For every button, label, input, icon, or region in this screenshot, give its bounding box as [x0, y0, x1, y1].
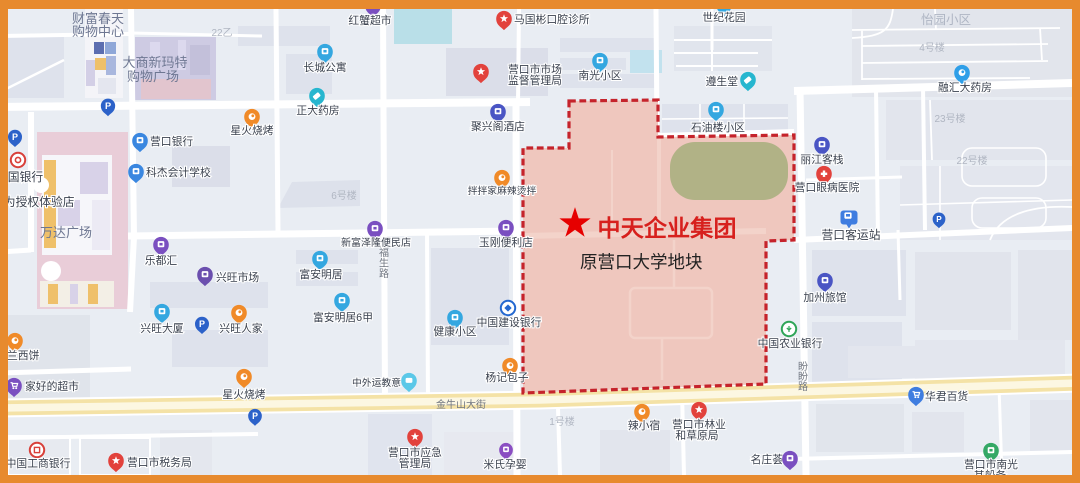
svg-text:6号楼: 6号楼 [331, 189, 357, 202]
svg-text:星火烧烤: 星火烧烤 [222, 387, 265, 401]
svg-text:营口客运站: 营口客运站 [822, 228, 881, 242]
svg-text:营口市南光: 营口市南光 [964, 457, 1018, 471]
svg-text:营口市市场: 营口市市场 [508, 62, 562, 76]
svg-text:杨记包子: 杨记包子 [485, 370, 528, 384]
svg-text:兴旺市场: 兴旺市场 [216, 270, 259, 284]
svg-text:遵生堂: 遵生堂 [706, 74, 739, 88]
svg-text:拌拌家麻辣烫拌: 拌拌家麻辣烫拌 [468, 184, 537, 197]
svg-text:兴旺人家: 兴旺人家 [219, 321, 262, 335]
svg-text:红蟹超市: 红蟹超市 [348, 13, 391, 27]
svg-text:监督管理局: 监督管理局 [508, 73, 562, 87]
svg-text:富安明居: 富安明居 [299, 267, 342, 281]
svg-text:星火烧烤: 星火烧烤 [230, 123, 273, 137]
svg-text:营口市税务局: 营口市税务局 [127, 455, 192, 469]
svg-text:米氏孕婴: 米氏孕婴 [483, 458, 526, 471]
svg-text:和草原局: 和草原局 [675, 429, 718, 442]
svg-text:兰西饼: 兰西饼 [7, 348, 40, 362]
svg-text:万达广场: 万达广场 [40, 225, 92, 240]
svg-text:P: P [252, 411, 258, 421]
svg-text:23号楼: 23号楼 [934, 112, 965, 125]
svg-text:营口银行: 营口银行 [150, 134, 193, 148]
svg-text:营口眼病医院: 营口眼病医院 [795, 180, 860, 194]
svg-text:P: P [936, 215, 942, 224]
svg-text:健康小区: 健康小区 [433, 324, 476, 338]
svg-text:福生路: 福生路 [379, 246, 389, 280]
svg-text:聚兴阁酒店: 聚兴阁酒店 [471, 119, 525, 133]
svg-text:华君百货: 华君百货 [925, 389, 968, 403]
svg-text:中外运教意: 中外运教意 [352, 376, 401, 389]
svg-text:原营口大学地块: 原营口大学地块 [580, 252, 703, 272]
svg-text:大商新玛特: 大商新玛特 [122, 55, 187, 70]
svg-text:科杰会计学校: 科杰会计学校 [146, 165, 211, 179]
svg-text:22号楼: 22号楼 [956, 154, 987, 167]
svg-text:怡园小区: 怡园小区 [921, 13, 971, 27]
svg-text:营口市应急: 营口市应急 [388, 445, 442, 459]
svg-text:中国工商银行: 中国工商银行 [6, 456, 71, 470]
svg-text:世纪花园: 世纪花园 [702, 11, 745, 24]
svg-text:中国建设银行: 中国建设银行 [477, 315, 542, 329]
svg-text:融汇大药房: 融汇大药房 [938, 80, 992, 94]
svg-text:1号楼: 1号楼 [549, 415, 575, 428]
svg-text:家好的超市: 家好的超市 [25, 379, 79, 393]
svg-text:22乙: 22乙 [211, 27, 232, 39]
svg-text:马国彬口腔诊所: 马国彬口腔诊所 [514, 12, 590, 26]
svg-text:P: P [199, 319, 205, 329]
svg-text:4号楼: 4号楼 [919, 41, 945, 54]
svg-text:辣小宿: 辣小宿 [628, 418, 661, 432]
svg-text:购物广场: 购物广场 [127, 69, 179, 84]
svg-text:P: P [105, 101, 111, 111]
svg-text:购物中心: 购物中心 [72, 24, 124, 39]
svg-text:管理局: 管理局 [399, 456, 431, 470]
svg-text:正大药房: 正大药房 [296, 103, 339, 117]
svg-text:新富泽隆便民店: 新富泽隆便民店 [341, 236, 411, 249]
svg-text:中天企业集团: 中天企业集团 [598, 215, 737, 241]
svg-text:乐都汇: 乐都汇 [145, 254, 178, 267]
svg-text:玉刚便利店: 玉刚便利店 [479, 235, 533, 249]
svg-text:富安明居6甲: 富安明居6甲 [313, 310, 373, 324]
svg-text:中国农业银行: 中国农业银行 [758, 336, 823, 350]
svg-text:加州旅馆: 加州旅馆 [803, 290, 846, 304]
svg-text:盼盼路: 盼盼路 [798, 361, 808, 393]
svg-text:南光小区: 南光小区 [578, 68, 621, 82]
svg-text:丽江客栈: 丽江客栈 [800, 152, 843, 166]
svg-text:名庄荟: 名庄荟 [751, 452, 784, 466]
svg-text:营口市林业: 营口市林业 [672, 417, 726, 431]
svg-text:金牛山大街: 金牛山大街 [436, 398, 486, 411]
svg-text:兴旺大厦: 兴旺大厦 [140, 321, 183, 335]
svg-text:长城公寓: 长城公寓 [303, 60, 346, 74]
svg-text:P: P [12, 132, 18, 142]
svg-text:石油楼小区: 石油楼小区 [691, 120, 745, 134]
svg-text:华为授权体验店: 华为授权体验店 [0, 195, 75, 209]
